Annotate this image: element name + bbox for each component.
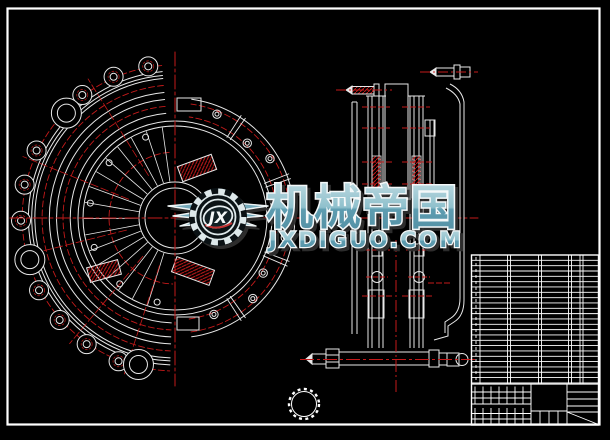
watermark-monogram: JX [206, 208, 228, 227]
cad-drawing: JX 机械帝国 JXDIGUO.COM [0, 0, 610, 440]
watermark-domain-text: JXDIGUO.COM [267, 228, 463, 253]
watermark-logo: JX 机械帝国 JXDIGUO.COM [168, 181, 463, 253]
cad-screenshot: JX 机械帝国 JXDIGUO.COM [0, 0, 610, 440]
gear-icon: JX [189, 188, 247, 246]
